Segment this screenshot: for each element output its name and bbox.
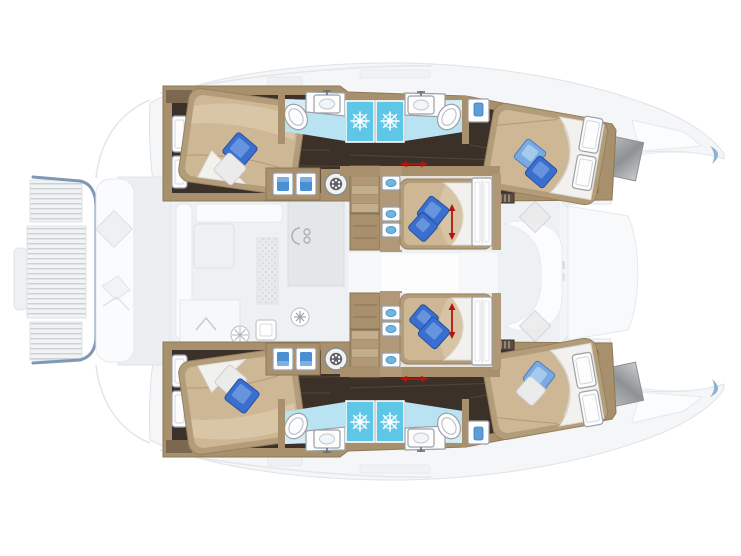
aft-platform <box>27 177 96 364</box>
saloon-table <box>194 224 234 268</box>
platform-slats-main <box>27 226 86 318</box>
deck-ring-icon <box>231 326 249 344</box>
galley-mat <box>257 238 278 304</box>
galley-sink <box>256 320 276 340</box>
burner-icon <box>291 308 309 326</box>
floor-plan-canvas <box>0 0 741 556</box>
galley-counter <box>288 198 344 286</box>
catamaran-floor-plan <box>0 0 741 556</box>
transom-step <box>14 248 27 310</box>
saloon-bench <box>196 204 282 222</box>
platform-slats-bottom <box>30 322 82 360</box>
cockpit-bench <box>96 179 134 362</box>
platform-slats-top <box>30 180 82 222</box>
